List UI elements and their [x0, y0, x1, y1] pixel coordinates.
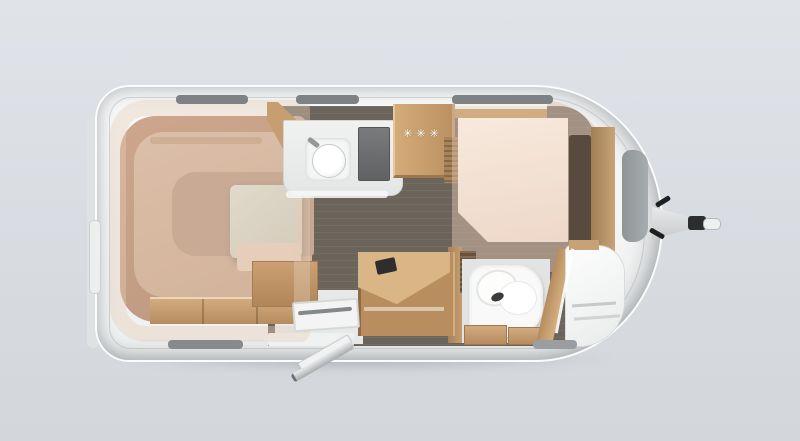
caravan-floorplan-scene: ✳✳✳ [0, 0, 800, 441]
kitchen-counter-edge [286, 191, 388, 198]
bed-storage-gap [569, 135, 591, 253]
front-window [622, 150, 648, 242]
toilet-seat [499, 281, 537, 315]
bottom-window-1 [168, 340, 243, 349]
overhead-shelf-edge [150, 137, 262, 144]
hitch-coupling-tip [703, 218, 721, 230]
bathroom-cabinet-left [464, 325, 507, 345]
rear-window [89, 220, 101, 294]
shower-tray [565, 245, 625, 347]
caravan-body: ✳✳✳ [95, 85, 663, 362]
bed-mattress [458, 118, 568, 242]
sink-bowl [312, 144, 346, 178]
top-window-3 [452, 95, 553, 104]
top-window-1 [176, 95, 248, 104]
bed-headshelf [455, 109, 547, 118]
bottom-window-2 [533, 340, 577, 349]
hob [358, 127, 390, 181]
top-window-2 [296, 95, 359, 104]
wardrobe-shelf-line [364, 307, 444, 311]
